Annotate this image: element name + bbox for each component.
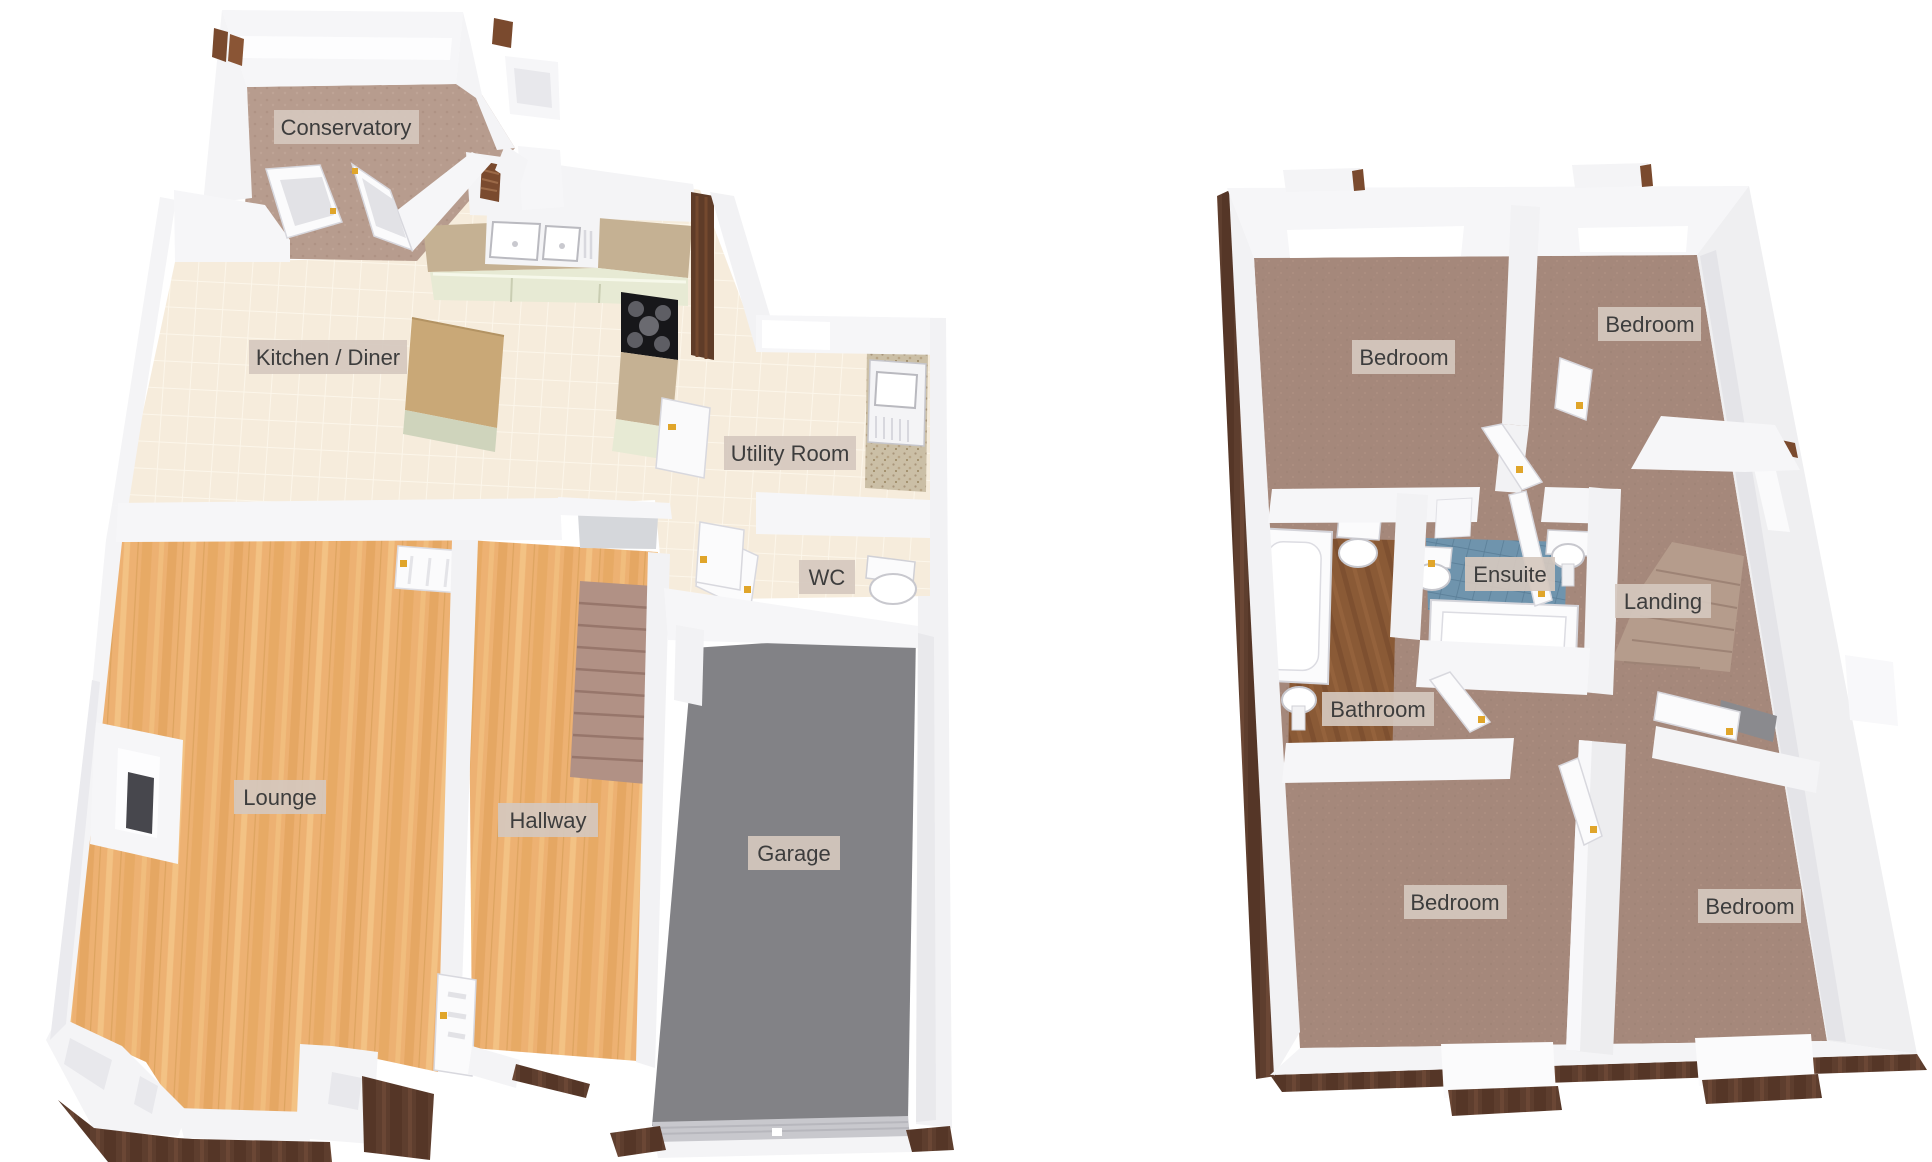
svg-text:Bathroom: Bathroom (1330, 697, 1425, 722)
svg-text:Garage: Garage (757, 841, 830, 866)
svg-text:Bedroom: Bedroom (1410, 890, 1499, 915)
svg-text:Bedroom: Bedroom (1605, 312, 1694, 337)
svg-text:Ensuite: Ensuite (1473, 562, 1546, 587)
svg-text:Bedroom: Bedroom (1705, 894, 1794, 919)
svg-text:Hallway: Hallway (509, 808, 586, 833)
svg-text:Landing: Landing (1624, 589, 1702, 614)
svg-text:WC: WC (809, 565, 846, 590)
svg-text:Conservatory: Conservatory (281, 115, 412, 140)
svg-text:Lounge: Lounge (243, 785, 316, 810)
svg-text:Bedroom: Bedroom (1359, 345, 1448, 370)
svg-text:Kitchen / Diner: Kitchen / Diner (256, 345, 400, 370)
svg-text:Utility Room: Utility Room (731, 441, 850, 466)
